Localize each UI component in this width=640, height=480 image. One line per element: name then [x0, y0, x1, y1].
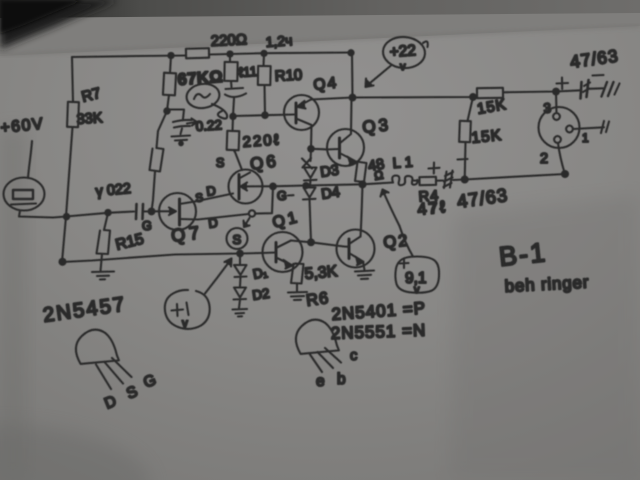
svg-text:3: 3: [543, 100, 552, 116]
svg-text:G: G: [277, 189, 287, 203]
svg-text:Q6: Q6: [249, 151, 280, 174]
svg-text:v: v: [182, 318, 188, 330]
svg-text:Q7: Q7: [170, 222, 204, 246]
svg-text:67KΩ: 67KΩ: [177, 68, 224, 89]
svg-text:47ℓ: 47ℓ: [417, 198, 448, 219]
svg-text:S: S: [216, 156, 224, 170]
svg-text:0.22: 0.22: [195, 117, 222, 134]
svg-text:b: b: [337, 371, 346, 388]
svg-text:2: 2: [540, 151, 548, 167]
svg-text:D2: D2: [251, 286, 270, 303]
svg-text:ℓ11: ℓ11: [238, 64, 257, 80]
svg-text:R6: R6: [305, 289, 330, 310]
svg-text:e: e: [316, 373, 325, 390]
svg-text:S: S: [233, 232, 242, 247]
svg-text:2N5551 =N: 2N5551 =N: [330, 321, 426, 343]
svg-text:v: v: [400, 61, 406, 73]
svg-text:v: v: [414, 284, 420, 296]
svg-text:D4: D4: [320, 185, 341, 203]
svg-text:R10: R10: [274, 67, 302, 85]
svg-text:G: G: [142, 219, 152, 233]
svg-text:5,3K: 5,3K: [304, 263, 339, 283]
svg-text:1: 1: [582, 131, 589, 145]
svg-text:D3: D3: [319, 163, 340, 181]
svg-text:220Ω: 220Ω: [210, 31, 247, 50]
svg-text:B-1: B-1: [497, 237, 548, 272]
svg-text:L1: L1: [392, 154, 417, 172]
svg-text:220ℓ: 220ℓ: [242, 131, 281, 151]
svg-text:15K: 15K: [471, 127, 503, 147]
svg-text:Q3: Q3: [361, 115, 392, 137]
svg-text:Q4: Q4: [313, 74, 339, 93]
svg-text:+22: +22: [389, 42, 416, 61]
svg-text:c: c: [350, 348, 357, 364]
svg-text:γ 022: γ 022: [95, 181, 132, 200]
svg-text:1,2ч: 1,2ч: [265, 32, 293, 50]
svg-text:33K: 33K: [76, 110, 103, 128]
